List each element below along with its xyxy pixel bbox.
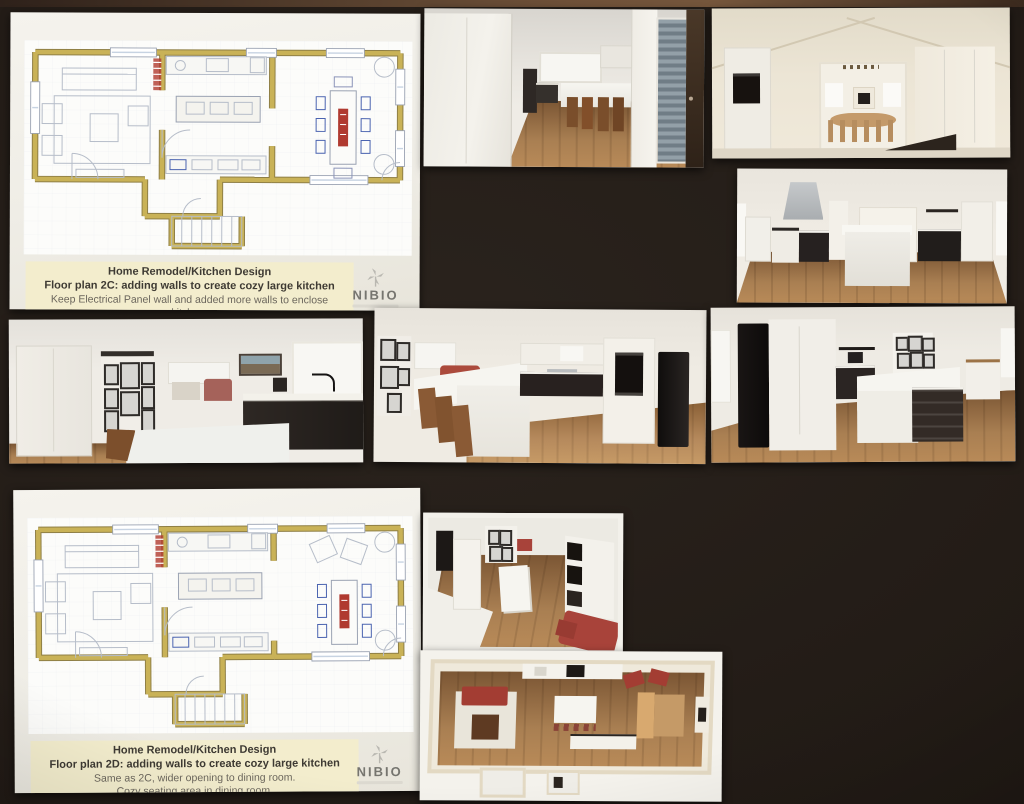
picture-frame xyxy=(104,364,119,386)
floor-plan-2d-sheet: Home Remodel/Kitchen Design Floor plan 2… xyxy=(13,488,422,793)
side-window xyxy=(996,202,1007,256)
fireplace xyxy=(695,696,710,732)
door-jamb xyxy=(631,9,658,167)
plan-2d-subtitle: Floor plan 2D: adding walls to create co… xyxy=(37,757,353,773)
floor-plan-drawing xyxy=(10,12,421,263)
right-tall-cabinets xyxy=(914,47,995,149)
half-wall-right xyxy=(966,359,1000,399)
render-kitchen-cutaway xyxy=(423,513,623,656)
nibio-logo: NIBIO xyxy=(350,742,410,784)
floor-plan-2c-sheet: Home Remodel/Kitchen Design Floor plan 2… xyxy=(9,12,420,310)
dining-opening xyxy=(819,62,907,153)
kitchen-island xyxy=(499,565,530,612)
island-dark-drawers xyxy=(912,387,964,442)
red-sofa xyxy=(461,687,508,706)
render-island-appliance-wall xyxy=(373,308,706,464)
dark-fridge xyxy=(436,531,453,571)
small-dark-appliance xyxy=(848,352,863,363)
hood-bar-right xyxy=(926,209,958,212)
floor-strip xyxy=(712,147,1010,159)
floor-plan-drawing xyxy=(13,488,421,742)
firebox xyxy=(858,93,869,104)
windmill-logo-icon xyxy=(369,742,391,764)
picture-frame xyxy=(397,368,410,386)
bar-stool xyxy=(582,98,593,130)
nibio-logo-text: NIBIO xyxy=(346,287,406,302)
plan-2d-caption: Home Remodel/Kitchen Design Floor plan 2… xyxy=(31,739,359,793)
nibio-logo: NIBIO xyxy=(345,265,405,307)
bar-stool xyxy=(597,98,608,131)
tall-white-cabinet xyxy=(453,539,482,610)
dark-base-cabinets xyxy=(520,372,603,396)
picture-frame xyxy=(380,366,399,389)
dining-window xyxy=(883,83,901,107)
window-right xyxy=(1001,328,1015,378)
nibio-logo-tagline xyxy=(357,781,403,784)
island-stools xyxy=(554,724,596,731)
right-tall-cabinet xyxy=(961,201,993,261)
coffee-maker xyxy=(273,378,287,392)
dark-appliance xyxy=(553,777,563,787)
nibio-logo-text: NIBIO xyxy=(350,764,410,779)
dark-base-cabinet xyxy=(536,83,558,102)
waterfall-island xyxy=(845,232,910,286)
pantry-door xyxy=(424,13,513,167)
vestibule-bump xyxy=(480,768,525,798)
dining-table xyxy=(653,694,685,737)
windmill-logo-icon xyxy=(365,266,387,288)
gallery-frames-left xyxy=(377,336,411,416)
plan-2d-note-2: Cozy seating area in dining room. xyxy=(37,785,353,794)
window-left xyxy=(711,329,732,402)
kitchen-window xyxy=(539,52,602,83)
picture-frame xyxy=(104,411,119,433)
picture-frame xyxy=(141,362,155,385)
dining-chairs xyxy=(828,120,898,143)
appliance-wall xyxy=(565,536,615,620)
presentation-board: Home Remodel/Kitchen Design Floor plan 2… xyxy=(0,0,1024,804)
plan-2c-note-1: Keep Electrical Panel wall and added mor… xyxy=(31,293,347,311)
picture-frame xyxy=(120,362,140,389)
white-cabinet-wall xyxy=(768,320,836,451)
picture-frame xyxy=(922,337,935,351)
render-island-hood xyxy=(737,169,1007,304)
picture-frame xyxy=(387,393,402,413)
wall-oven xyxy=(733,73,760,103)
upper-cabinet xyxy=(600,46,633,69)
picture-frame xyxy=(895,337,909,351)
bar-stool xyxy=(567,97,578,127)
island-foreground xyxy=(126,423,289,464)
bar-stool xyxy=(613,98,624,131)
picture-frame xyxy=(499,530,512,547)
sink xyxy=(535,667,547,676)
firebox xyxy=(698,707,707,721)
open-door-blinds xyxy=(656,17,689,163)
range xyxy=(772,228,799,263)
wall-oven xyxy=(615,353,644,396)
dark-appliance xyxy=(567,542,582,561)
render-vaulted-dining xyxy=(712,7,1011,158)
picture-frame xyxy=(120,391,140,416)
picture-frame xyxy=(141,386,155,409)
kitchen-island xyxy=(554,696,596,724)
render-kitchen-doorway xyxy=(424,8,705,167)
render-overhead-plan xyxy=(420,650,723,802)
render-island-from-living xyxy=(711,306,1016,463)
gallery-rod xyxy=(101,351,154,357)
picture-frame xyxy=(396,342,410,361)
ceiling-beam xyxy=(643,308,706,339)
top-counter-run xyxy=(523,664,623,679)
small-window xyxy=(560,346,583,362)
plan-2c-subtitle: Floor plan 2C: adding walls to create co… xyxy=(32,279,348,294)
lower-counter xyxy=(570,734,637,749)
right-dark-cabinets xyxy=(918,229,961,261)
hood-bar xyxy=(838,347,874,350)
dark-door-edge xyxy=(685,10,704,168)
picture-frame xyxy=(896,353,910,368)
island-front-white xyxy=(857,390,918,443)
black-refrigerator xyxy=(657,351,689,447)
dining-window xyxy=(825,83,843,107)
entry-room-bump xyxy=(546,771,579,795)
range-hood xyxy=(783,182,824,220)
dark-appliance xyxy=(567,590,582,607)
hall-chair xyxy=(172,382,200,399)
gallery-wall-back xyxy=(485,526,517,563)
pendant-lights xyxy=(843,65,879,69)
table-edge xyxy=(0,0,1024,7)
picture-frame xyxy=(488,530,500,545)
floor-plan-2c-drawing-area xyxy=(10,12,421,263)
door-knob xyxy=(689,97,693,101)
red-armchair xyxy=(204,379,232,401)
floor-plan-2d-drawing-area xyxy=(13,488,421,742)
dining-bench xyxy=(637,692,655,739)
picture-frame xyxy=(104,388,119,410)
landscape-picture xyxy=(239,353,282,376)
picture-frame xyxy=(380,339,396,361)
range xyxy=(566,665,584,677)
black-faucet xyxy=(312,373,335,391)
dark-base-cabinets xyxy=(799,230,829,262)
red-chair-top xyxy=(517,539,532,551)
dark-appliance xyxy=(567,565,582,585)
fireplace xyxy=(853,87,875,110)
white-fridge xyxy=(745,217,771,262)
black-pantry-column xyxy=(738,323,769,447)
picture-frame xyxy=(922,354,934,368)
plan-outer-walls xyxy=(427,659,714,774)
gallery-wall xyxy=(101,351,154,432)
plan-2c-caption: Home Remodel/Kitchen Design Floor plan 2… xyxy=(25,261,353,310)
render-gallery-wall-kitchen xyxy=(9,318,364,463)
picture-frame xyxy=(501,547,513,562)
coffee-table xyxy=(471,714,499,740)
plan-2c-title: Home Remodel/Kitchen Design xyxy=(32,264,348,279)
